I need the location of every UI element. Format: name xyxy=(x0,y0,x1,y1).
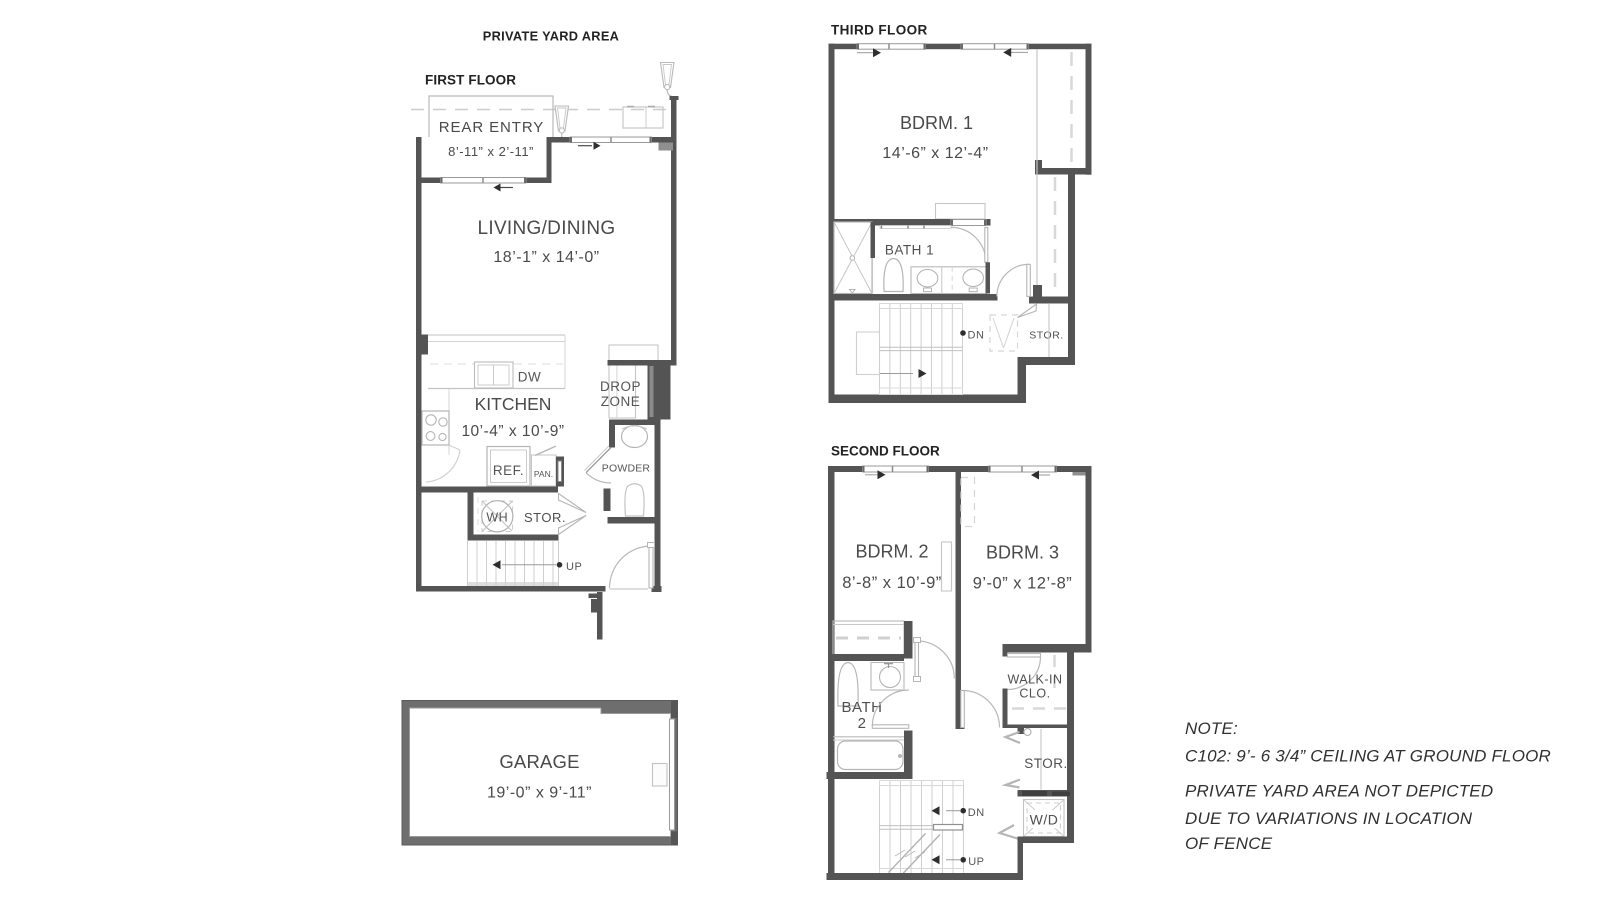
svg-text:9’-0” x 12’-8”: 9’-0” x 12’-8” xyxy=(973,575,1073,593)
svg-text:2: 2 xyxy=(858,715,867,732)
svg-text:PRIVATE YARD AREA: PRIVATE YARD AREA xyxy=(483,29,619,44)
svg-text:BDRM. 2: BDRM. 2 xyxy=(855,542,928,562)
svg-text:LIVING/DINING: LIVING/DINING xyxy=(478,218,616,239)
svg-text:REAR ENTRY: REAR ENTRY xyxy=(439,119,544,136)
svg-text:DROP: DROP xyxy=(600,379,641,394)
svg-text:PRIVATE YARD AREA NOT DEPICTED: PRIVATE YARD AREA NOT DEPICTED xyxy=(1185,782,1493,801)
svg-text:BATH: BATH xyxy=(842,699,883,716)
svg-text:ZONE: ZONE xyxy=(601,394,641,409)
svg-text:DN: DN xyxy=(968,807,985,819)
svg-text:19’-0” x 9’-11”: 19’-0” x 9’-11” xyxy=(487,785,592,802)
svg-text:FIRST FLOOR: FIRST FLOOR xyxy=(425,73,516,88)
svg-text:STOR.: STOR. xyxy=(1029,330,1063,342)
svg-text:SECOND FLOOR: SECOND FLOOR xyxy=(831,444,940,459)
svg-text:UP: UP xyxy=(566,561,582,573)
svg-text:14’-6” x 12’-4”: 14’-6” x 12’-4” xyxy=(882,145,988,162)
svg-text:DUE TO VARIATIONS IN LOCATION: DUE TO VARIATIONS IN LOCATION xyxy=(1185,809,1473,828)
svg-text:BATH 1: BATH 1 xyxy=(885,243,934,258)
svg-text:OF FENCE: OF FENCE xyxy=(1185,834,1273,853)
svg-text:DW: DW xyxy=(518,370,542,385)
svg-text:UP: UP xyxy=(968,856,984,868)
svg-text:THIRD FLOOR: THIRD FLOOR xyxy=(831,23,928,38)
svg-text:WALK-IN: WALK-IN xyxy=(1007,673,1062,687)
svg-text:W/D: W/D xyxy=(1030,812,1059,828)
svg-text:BDRM. 3: BDRM. 3 xyxy=(986,543,1059,563)
svg-text:PAN.: PAN. xyxy=(534,469,553,479)
svg-text:18’-1” x 14’-0”: 18’-1” x 14’-0” xyxy=(493,249,599,266)
svg-text:STOR.: STOR. xyxy=(1024,756,1068,771)
svg-text:KITCHEN: KITCHEN xyxy=(475,394,552,414)
svg-text:C102: 9’- 6 3/4” CEILING AT GR: C102: 9’- 6 3/4” CEILING AT GROUND FLOOR xyxy=(1185,747,1551,766)
svg-text:CLO.: CLO. xyxy=(1019,687,1050,701)
svg-text:WH: WH xyxy=(486,511,508,525)
svg-text:8’-8” x 10’-9”: 8’-8” x 10’-9” xyxy=(842,574,942,592)
svg-text:DN: DN xyxy=(968,330,985,342)
svg-text:BDRM. 1: BDRM. 1 xyxy=(900,113,973,133)
svg-text:POWDER: POWDER xyxy=(602,463,651,475)
svg-text:GARAGE: GARAGE xyxy=(499,751,579,772)
svg-text:STOR.: STOR. xyxy=(524,510,566,525)
svg-text:10’-4” x 10’-9”: 10’-4” x 10’-9” xyxy=(461,423,564,440)
svg-text:8’-11” x 2’-11”: 8’-11” x 2’-11” xyxy=(448,144,534,159)
svg-text:REF.: REF. xyxy=(493,463,524,478)
svg-text:NOTE:: NOTE: xyxy=(1185,719,1238,738)
